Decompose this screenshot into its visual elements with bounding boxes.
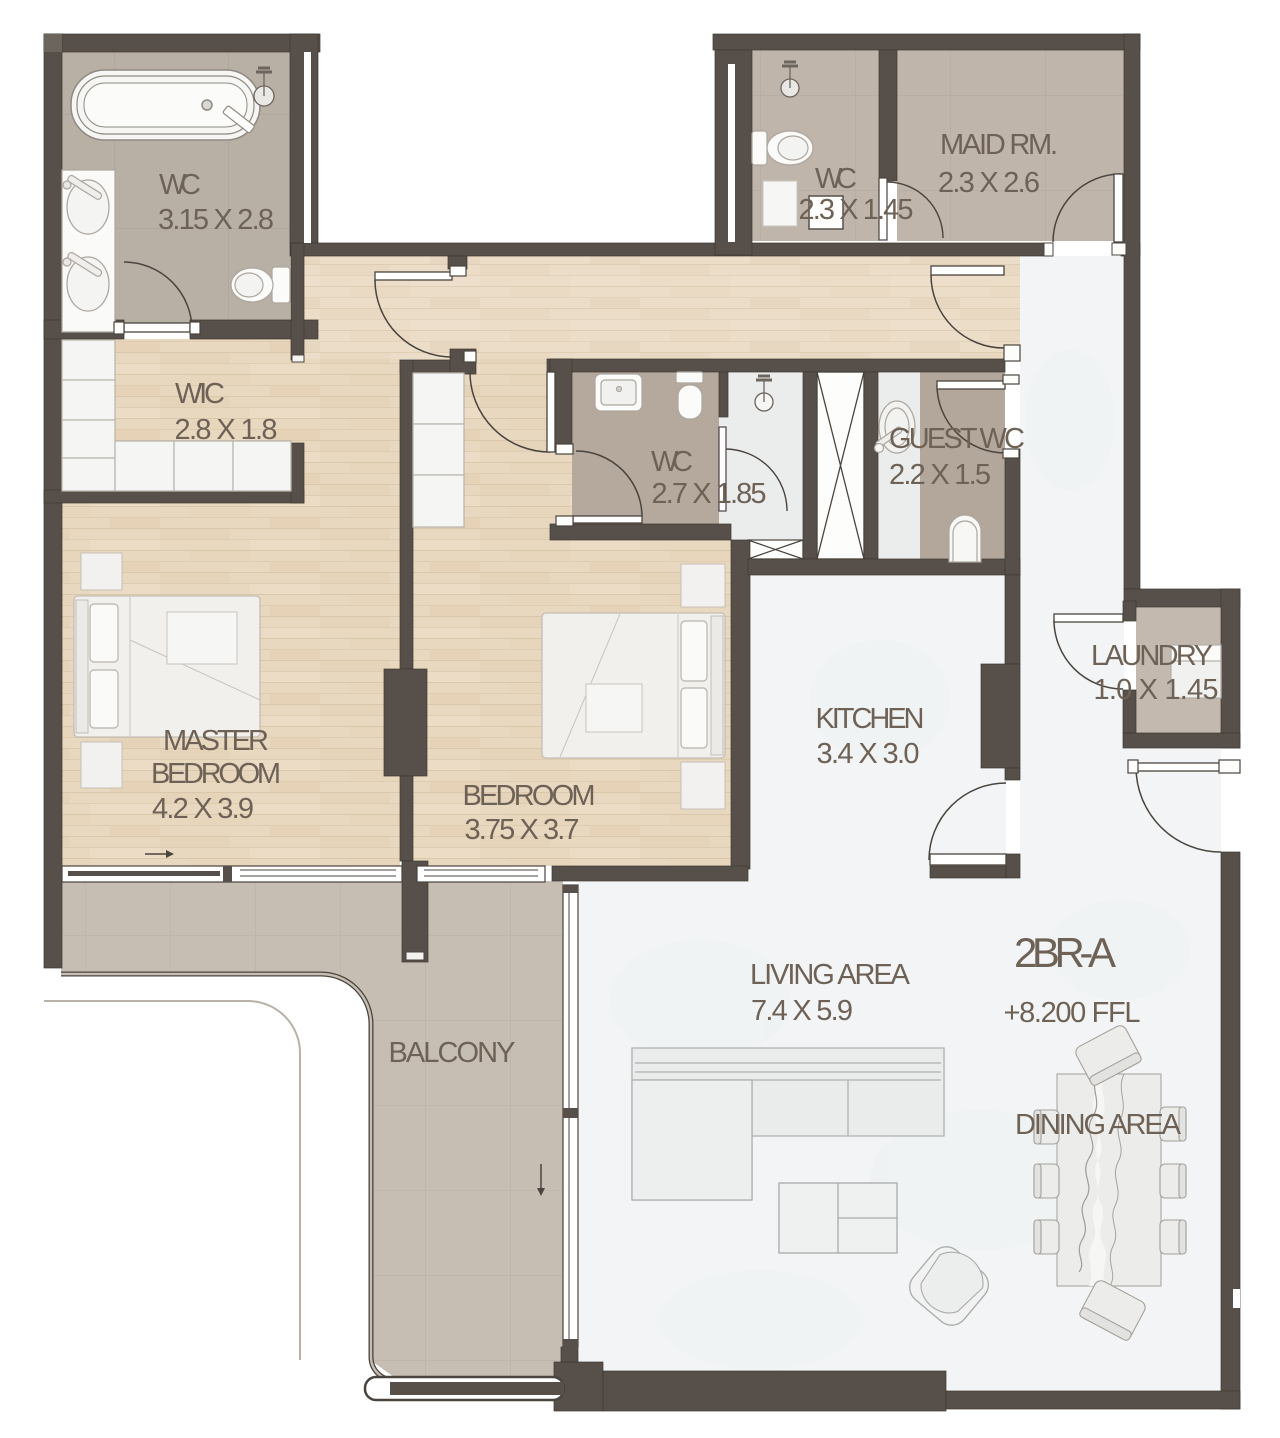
svg-text:MAID RM.: MAID RM. bbox=[940, 129, 1058, 161]
svg-text:WC: WC bbox=[815, 163, 857, 195]
svg-text:BEDROOM: BEDROOM bbox=[151, 758, 281, 790]
svg-text:WC: WC bbox=[159, 169, 201, 201]
svg-text:4.2 X 3.9: 4.2 X 3.9 bbox=[152, 793, 254, 825]
svg-text:KITCHEN: KITCHEN bbox=[816, 703, 925, 735]
svg-text:+8.200 FFL: +8.200 FFL bbox=[1004, 997, 1141, 1029]
svg-text:LAUNDRY: LAUNDRY bbox=[1091, 640, 1213, 672]
svg-text:DINING AREA: DINING AREA bbox=[1015, 1109, 1182, 1141]
svg-text:2.7 X 1.85: 2.7 X 1.85 bbox=[652, 478, 767, 510]
svg-text:3.75 X 3.7: 3.75 X 3.7 bbox=[465, 814, 580, 846]
svg-text:BALCONY: BALCONY bbox=[389, 1037, 516, 1069]
svg-text:MASTER: MASTER bbox=[163, 725, 269, 757]
svg-text:LIVING AREA: LIVING AREA bbox=[750, 959, 911, 991]
svg-text:7.4 X 5.9: 7.4 X 5.9 bbox=[751, 995, 853, 1027]
svg-text:3.4 X 3.0: 3.4 X 3.0 bbox=[817, 738, 920, 770]
svg-text:1.0 X 1.45: 1.0 X 1.45 bbox=[1094, 674, 1219, 706]
svg-text:3.15 X 2.8: 3.15 X 2.8 bbox=[158, 204, 274, 236]
svg-text:2.3 X 1.45: 2.3 X 1.45 bbox=[799, 194, 914, 226]
svg-text:2.8 X 1.8: 2.8 X 1.8 bbox=[175, 414, 278, 446]
svg-text:2BR-A: 2BR-A bbox=[1014, 929, 1116, 976]
svg-text:2.2 X 1.5: 2.2 X 1.5 bbox=[889, 459, 991, 491]
svg-text:BEDROOM: BEDROOM bbox=[463, 780, 596, 812]
svg-text:WC: WC bbox=[651, 446, 693, 478]
svg-text:2.3 X 2.6: 2.3 X 2.6 bbox=[938, 167, 1040, 199]
svg-text:WIC: WIC bbox=[175, 378, 225, 410]
svg-text:GUEST WC: GUEST WC bbox=[889, 423, 1025, 455]
